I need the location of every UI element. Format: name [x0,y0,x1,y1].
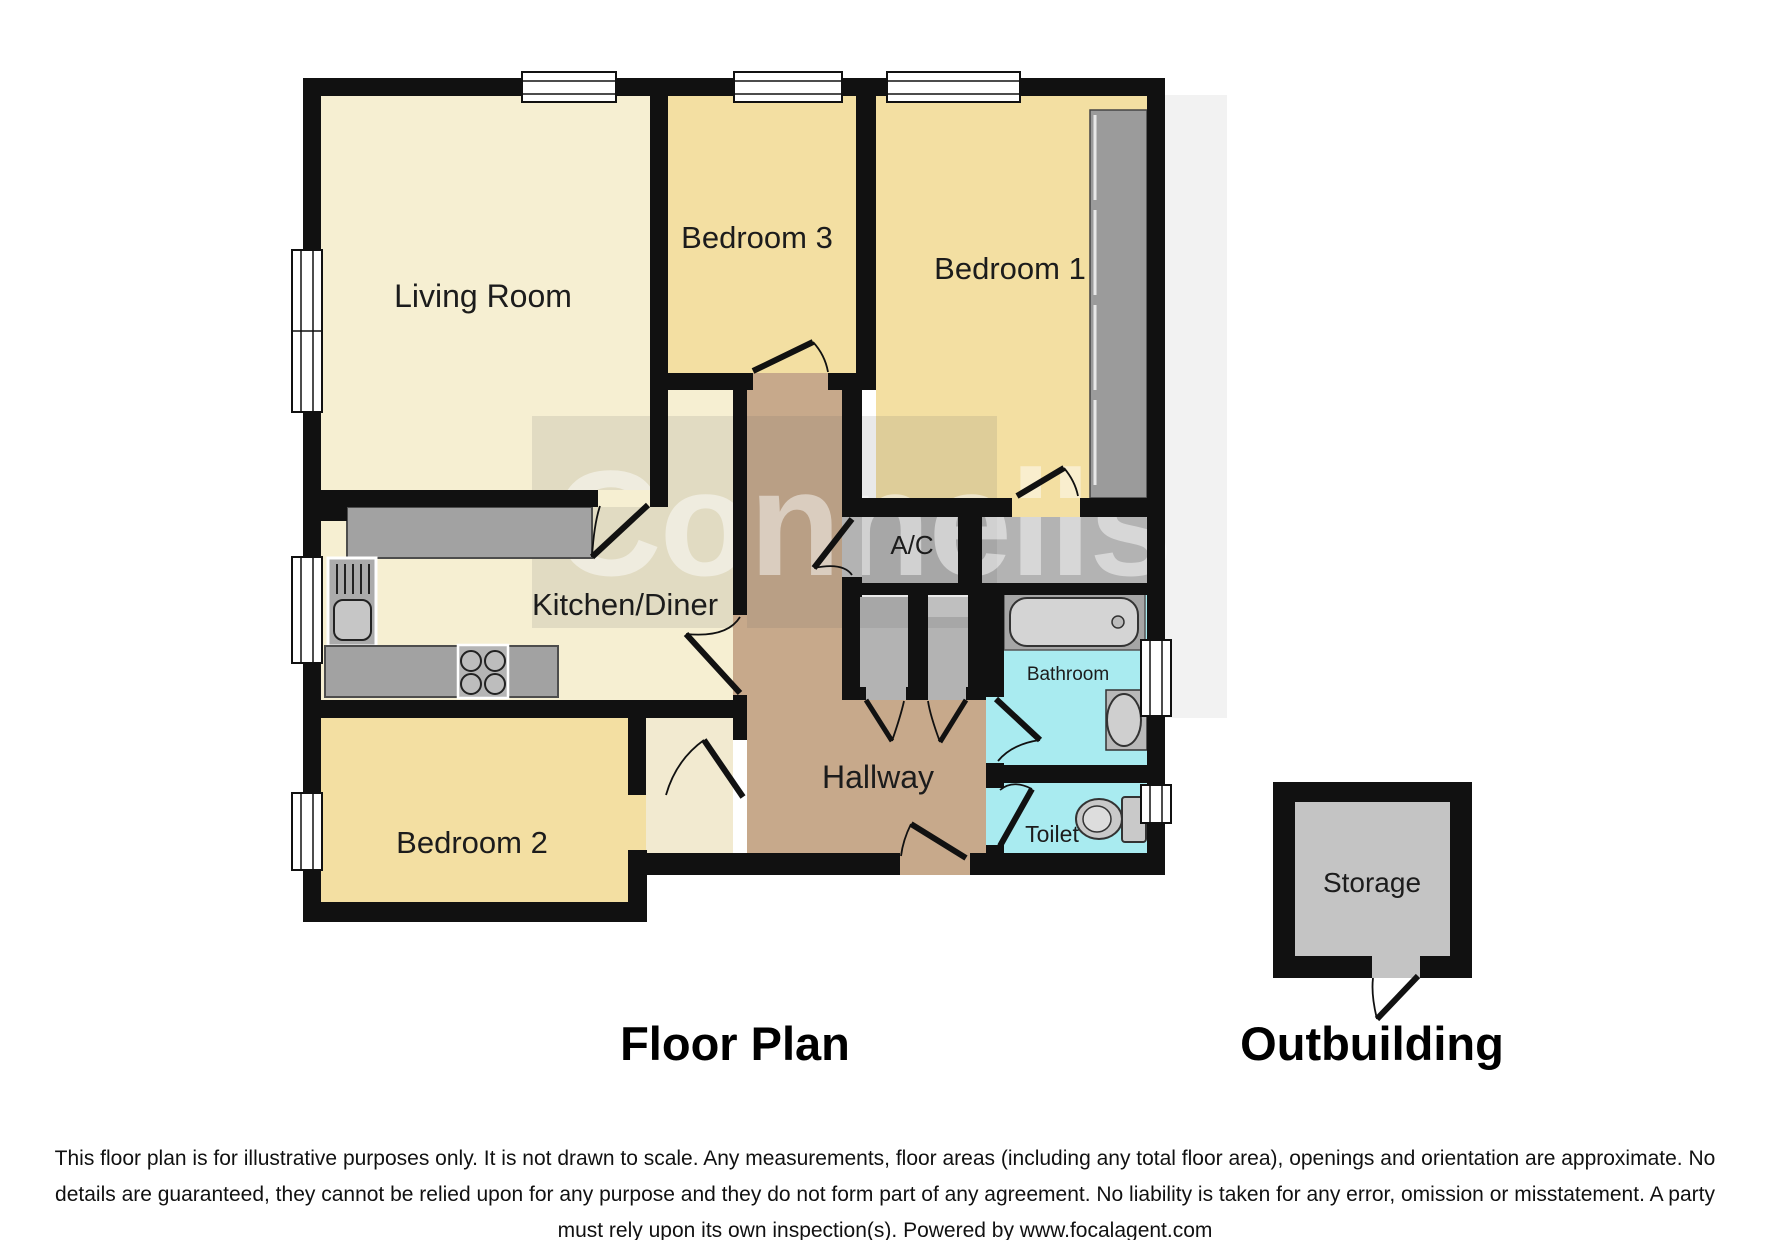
kitchen-sink-basin-icon [334,600,371,640]
door-storage [1373,976,1419,1019]
storage-label: Storage [1323,867,1421,898]
opening-floor [986,788,1004,845]
floor-plan-drawing: Connells [0,0,1771,1240]
bedroom-2-label: Bedroom 2 [396,825,548,860]
wall-segment [321,507,347,521]
wall-segment [303,490,598,507]
wall-segment [842,595,860,700]
window-bedroom2-left [292,793,322,870]
disclaimer-block: This floor plan is for illustrative purp… [55,1147,1716,1240]
wall-segment [906,687,928,700]
wall-segment [968,595,988,700]
opening-floor [733,615,747,695]
building-shadow [1165,95,1227,718]
opening-floor [753,373,828,390]
wall-segment [628,853,900,875]
living-room-label: Living Room [394,278,572,314]
wall-segment [908,595,928,700]
floor-plan-page: Connells [0,0,1771,1240]
bathtub-drain-icon [1112,616,1124,628]
wall-segment [1147,78,1165,875]
titles: Floor Plan Outbuilding [620,1017,1504,1070]
bathroom-label: Bathroom [1027,664,1109,685]
wall-segment [650,96,668,507]
wall-segment [733,390,747,615]
ac-label: A/C [890,530,933,560]
wall-segment [1080,498,1147,517]
opening-floor [598,490,650,507]
disclaimer-line-1: This floor plan is for illustrative purp… [55,1147,1716,1170]
opening-floor [628,795,646,850]
disclaimer-line-2: details are guaranteed, they cannot be r… [55,1183,1715,1206]
wall-segment [1450,782,1472,978]
bedroom-3-label: Bedroom 3 [681,220,833,255]
wall-segment [628,718,646,795]
wall-segment [303,902,647,922]
wall-segment [842,498,1012,517]
wall-segment [842,583,1165,595]
wall-segment [966,687,988,700]
kitchen-counter-top [347,507,592,558]
wall-segment [1273,782,1472,802]
kitchen-diner-label: Kitchen/Diner [532,587,718,622]
kitchen-counter-bottom [325,646,558,697]
bedroom-1-label: Bedroom 1 [934,251,1086,286]
toilet-bowl-inner [1083,806,1111,832]
window-kitchen-left [292,557,322,663]
disclaimer-line-3: must rely upon its own inspection(s). Po… [558,1219,1213,1240]
opening-floor [1012,498,1080,517]
wall-segment [842,373,862,517]
window-bedroom3-top [734,72,842,102]
floor-plan-title: Floor Plan [620,1017,850,1070]
toilet-label: Toilet [1025,821,1079,847]
opening-floor [928,687,966,700]
window-toilet-right [1141,785,1171,823]
wall-segment [856,96,876,390]
wall-segment [1273,782,1295,978]
wall-segment [986,765,1147,783]
wall-segment [986,595,1004,697]
opening-floor [1372,956,1420,978]
hallway-label: Hallway [822,759,934,795]
wall-segment [303,700,747,718]
kitchen-notch-floor [646,718,733,853]
outbuilding-title: Outbuilding [1240,1017,1504,1070]
opening-floor [866,687,906,700]
window-living-room-left [292,250,322,412]
bathroom-sink-icon [1107,694,1141,746]
wall-segment [958,517,982,583]
wardrobe [1090,110,1147,498]
wall-segment [986,845,1004,857]
wall-segment [1420,956,1472,978]
bedroom-2-floor [321,718,628,902]
window-bedroom1-top [887,72,1020,102]
wall-segment [668,373,753,390]
window-living-room-top [522,72,616,102]
wall-segment [842,687,866,700]
window-bathroom-right [1141,640,1171,716]
wall-segment [1273,956,1372,978]
